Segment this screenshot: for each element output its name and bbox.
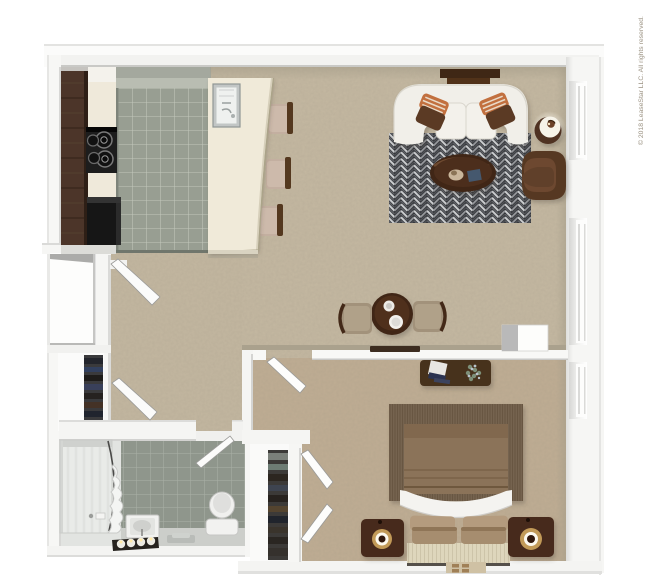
svg-text:© 2018 LeaseStar LLC. All righ: © 2018 LeaseStar LLC. All rights reserve…: [637, 16, 645, 145]
